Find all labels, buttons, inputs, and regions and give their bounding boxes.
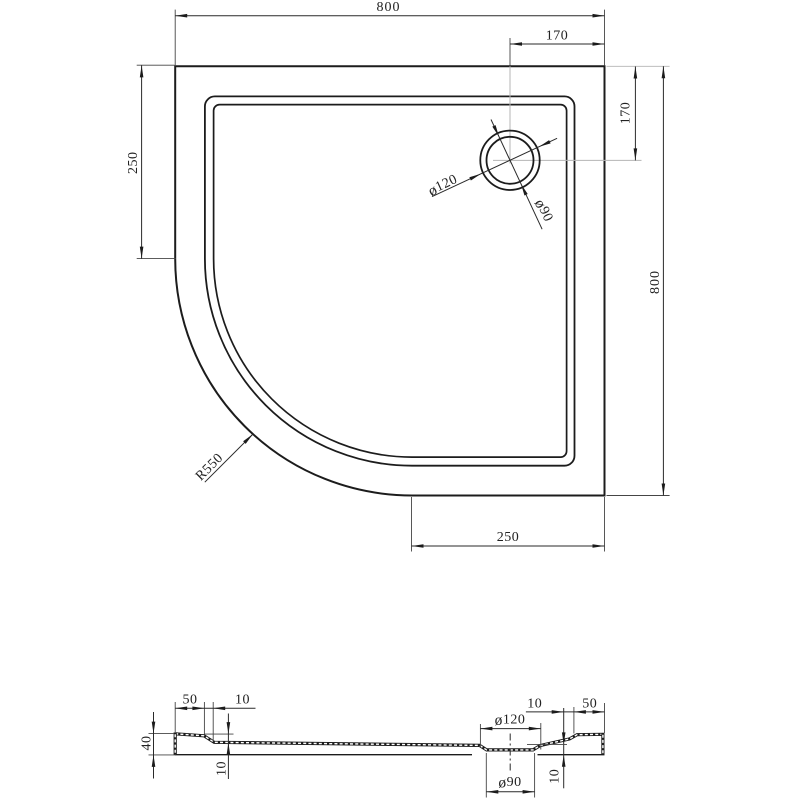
svg-text:170: 170 — [546, 29, 569, 44]
svg-text:10: 10 — [214, 761, 229, 776]
svg-text:50: 50 — [582, 697, 597, 712]
svg-text:10: 10 — [548, 769, 563, 784]
svg-text:10: 10 — [527, 697, 542, 712]
svg-text:170: 170 — [618, 102, 633, 125]
svg-text:ø120: ø120 — [495, 712, 526, 729]
svg-text:10: 10 — [235, 693, 250, 708]
svg-text:250: 250 — [126, 152, 141, 175]
svg-text:50: 50 — [183, 693, 198, 708]
svg-text:800: 800 — [648, 270, 663, 294]
svg-text:40: 40 — [139, 736, 154, 751]
svg-text:250: 250 — [497, 530, 520, 545]
svg-text:ø90: ø90 — [498, 774, 521, 791]
svg-text:800: 800 — [377, 0, 401, 15]
